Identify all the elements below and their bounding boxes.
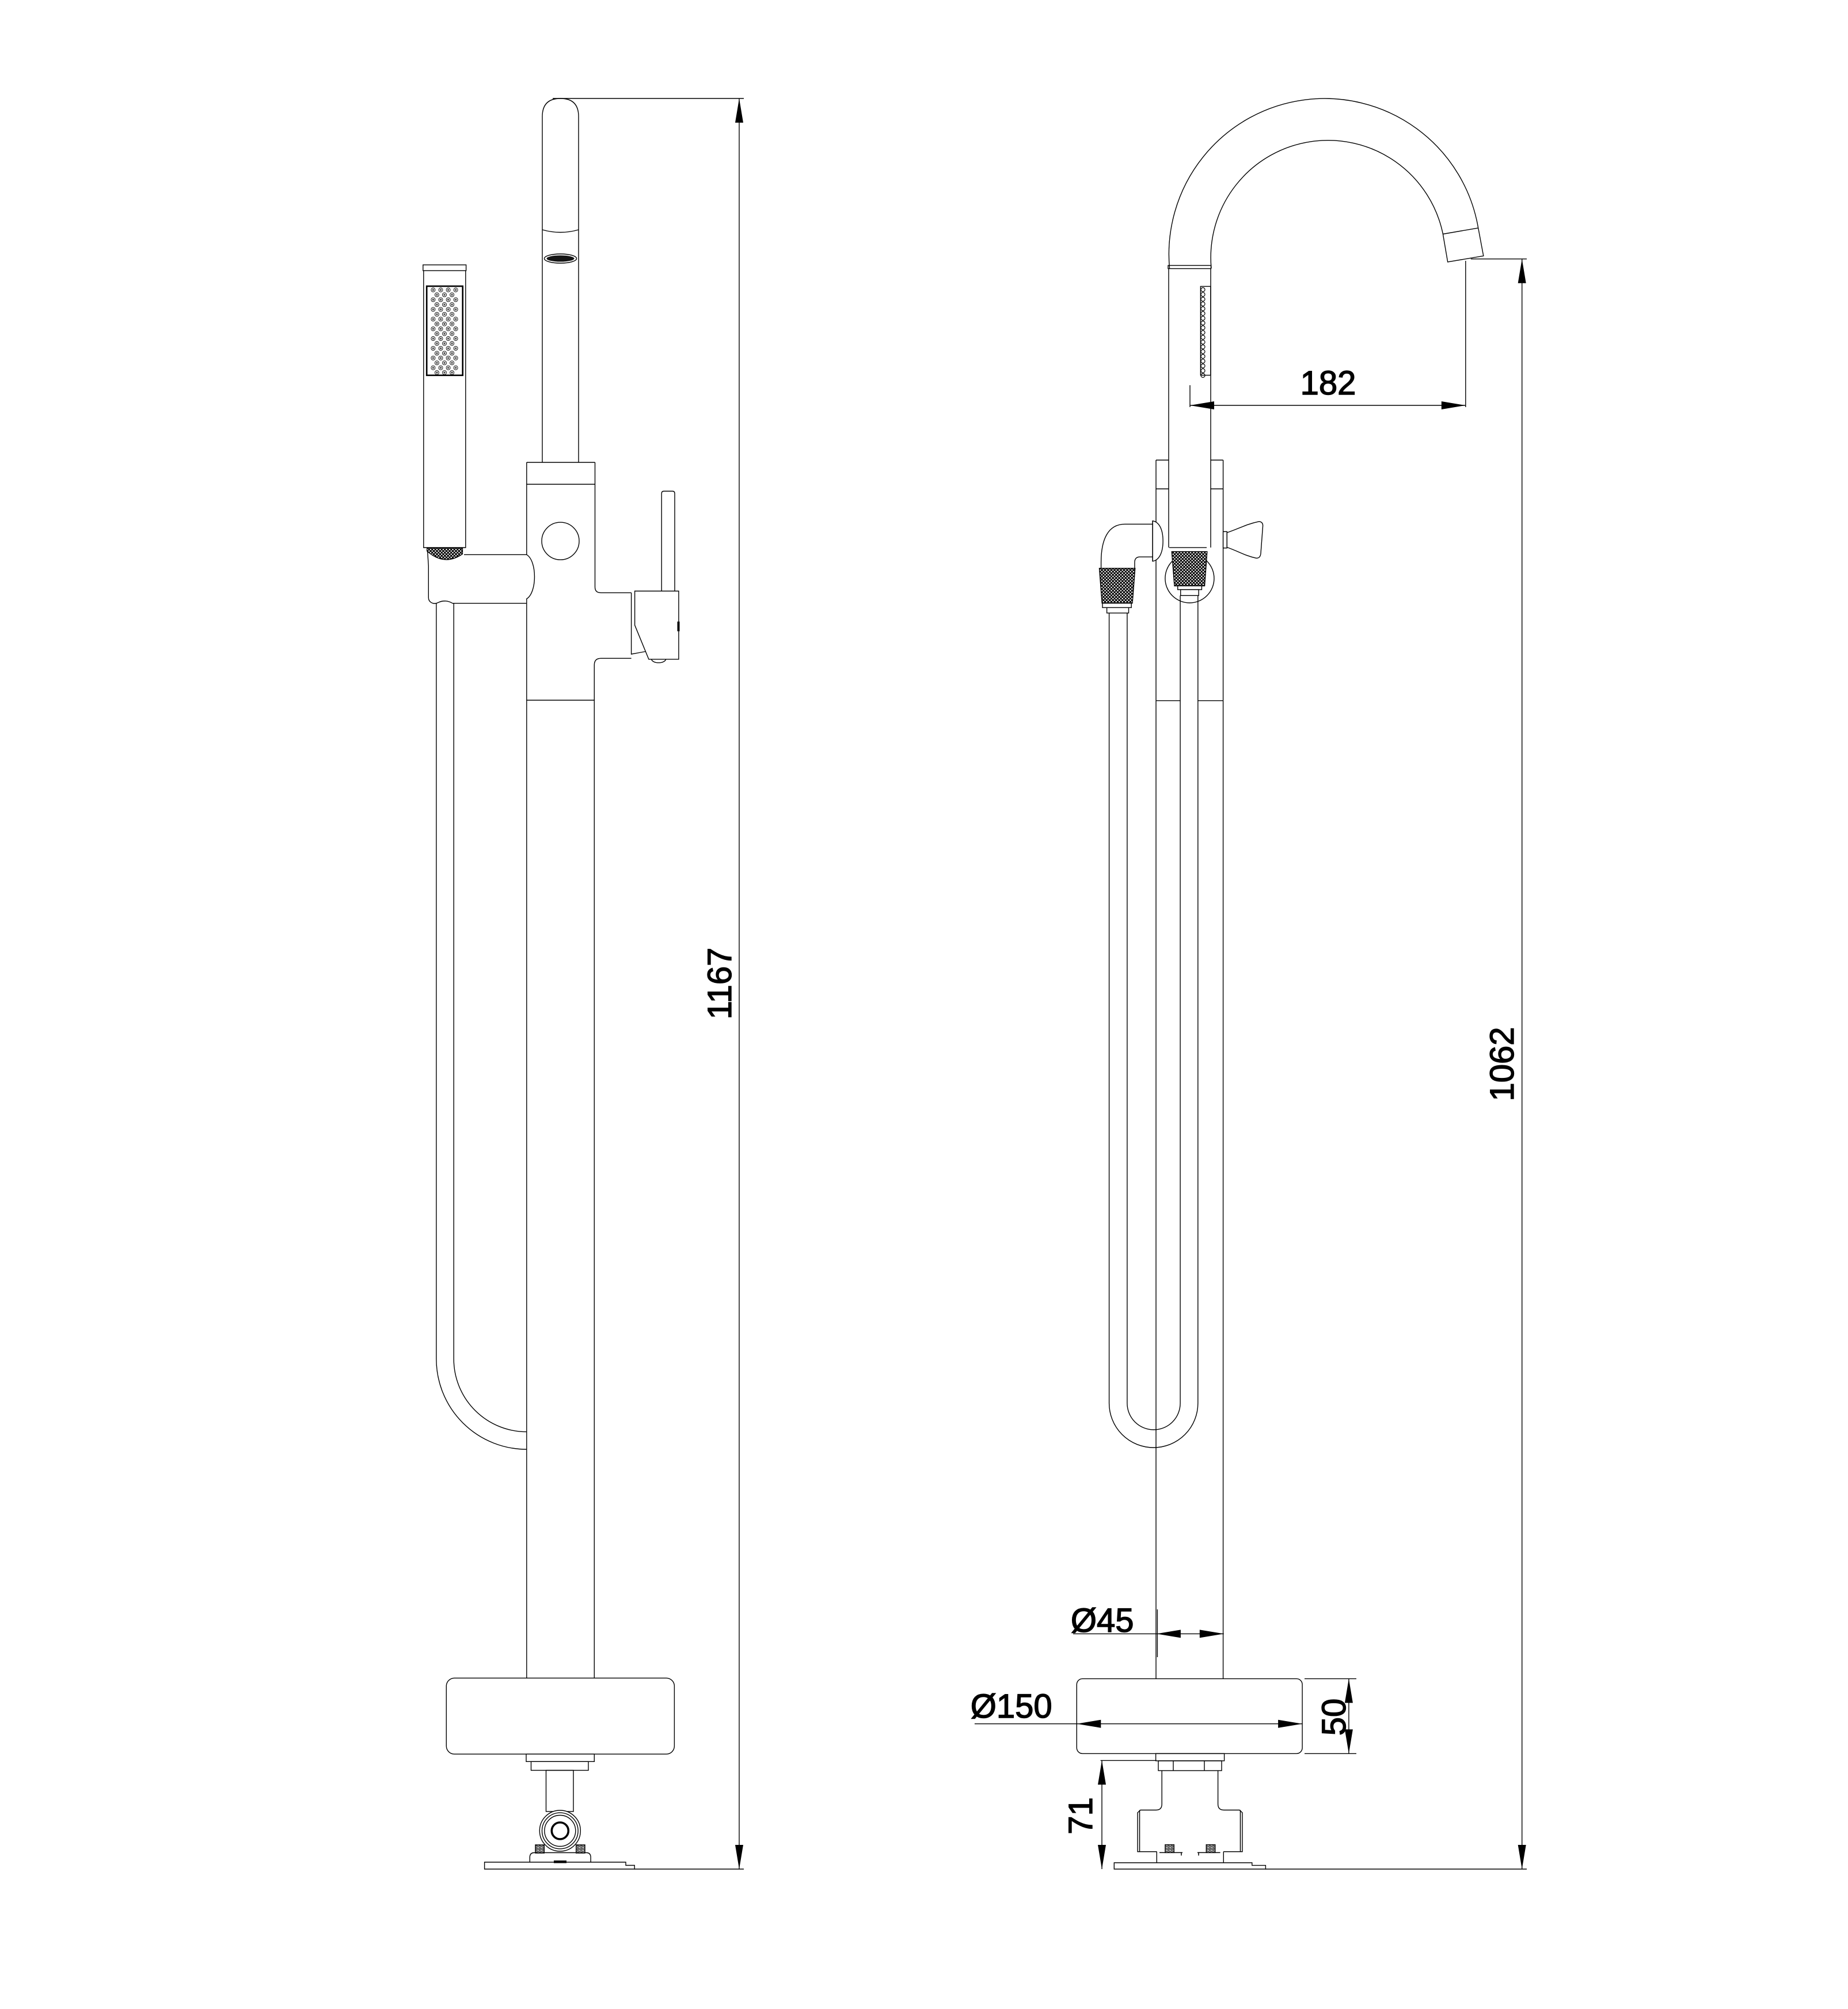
svg-text:182: 182 [1301,364,1356,402]
svg-text:1167: 1167 [701,948,739,1020]
svg-text:1062: 1062 [1484,1027,1521,1101]
svg-text:Ø150: Ø150 [971,1688,1052,1725]
svg-text:50: 50 [1315,1699,1353,1736]
svg-text:Ø45: Ø45 [1071,1602,1134,1639]
svg-text:71: 71 [1062,1797,1100,1835]
